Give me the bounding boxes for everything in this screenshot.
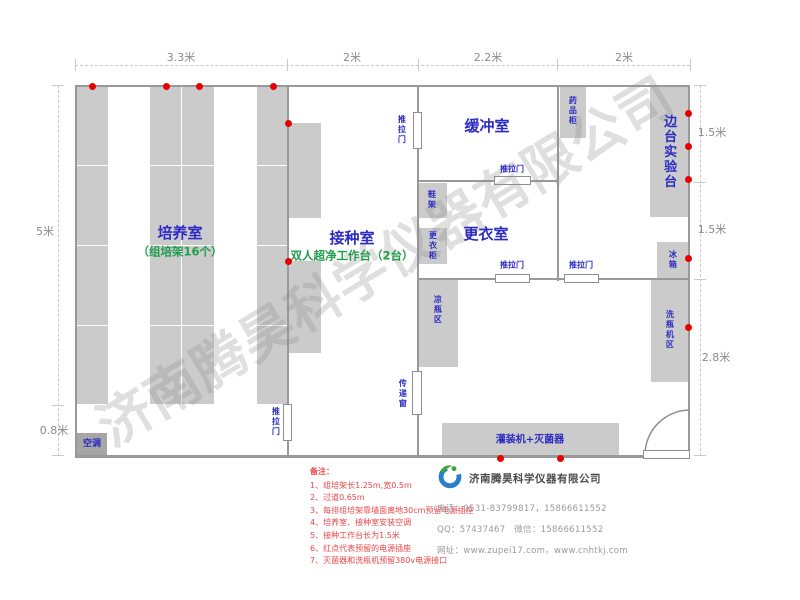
fridge-label: 冰箱 [668, 250, 677, 270]
sliding-door-label-5: 推拉门 [569, 262, 593, 271]
power-socket-dot [89, 83, 96, 90]
medicine-cabinet-label: 药品柜 [568, 96, 577, 126]
changing-room-label: 更衣室 [463, 226, 508, 243]
rack-shelf-divider [77, 325, 108, 326]
dim-line-right [700, 85, 701, 456]
rack-shelf-divider [77, 165, 108, 166]
wall-inoculation-buffer-upper [417, 85, 419, 113]
clean-bench-1 [289, 123, 321, 218]
shoe-rack-label: 鞋架 [427, 190, 436, 210]
dim-top-2: 2米 [343, 52, 361, 64]
bottle-washer-label: 洗瓶机区 [665, 310, 674, 350]
power-socket-dot [196, 83, 203, 90]
company-website: 网址：www.zupei17.com，www.cnhtkj.com [437, 544, 657, 556]
wall-buffer-sidebench [557, 85, 559, 281]
company-qq-wechat: QQ：57437467 微信：15866611552 [437, 523, 657, 535]
note-item: 7、灭菌器和洗瓶机预留380v电源接口 [310, 555, 473, 568]
filling-sterilizer-label: 灌装机+灭菌器 [496, 435, 564, 446]
company-logo-icon [437, 463, 463, 493]
dim-line-left [58, 85, 59, 456]
outer-wall-right [688, 85, 690, 458]
inoculation-room-sublabel: 双人超净工作台（2台） [290, 250, 413, 263]
sliding-door-label-2: 推拉门 [271, 407, 280, 437]
culture-room-sublabel: （组培架16个） [137, 246, 222, 259]
dim-right-1: 1.5米 [698, 127, 727, 139]
rack-shelf-divider [257, 245, 287, 246]
outer-wall-left [75, 85, 77, 458]
power-socket-dot [685, 255, 692, 262]
power-socket-dot [685, 324, 692, 331]
power-socket-dot [285, 120, 292, 127]
bottle-cooling-label: 凉瓶区 [433, 295, 442, 325]
clean-bench-2 [289, 261, 321, 353]
rack-shelf-divider [257, 165, 287, 166]
sliding-door-label-1: 推拉门 [397, 115, 406, 145]
wall-culture-inoculation-upper [287, 85, 289, 405]
power-socket-dot [557, 455, 564, 462]
dim-top-3: 2.2米 [474, 52, 503, 64]
sliding-door-culture-room [283, 404, 292, 441]
power-socket-dot [685, 110, 692, 117]
sliding-door-sidebench-bottom [564, 274, 599, 283]
rack-shelf-divider [150, 165, 214, 166]
inoculation-room-label: 接种室 [329, 230, 374, 247]
rack-shelf-divider [150, 325, 214, 326]
wall-culture-inoculation-lower [287, 441, 289, 457]
wall-buffer-changing-left [418, 180, 495, 182]
rack-shelf-divider [257, 325, 287, 326]
company-block: 济南腾昊科学仪器有限公司 电话：0531-83799817，1586661155… [437, 463, 657, 556]
buffer-room-label: 缓冲室 [464, 118, 509, 135]
air-conditioner-label: 空调 [83, 440, 101, 450]
sliding-door-buffer-changing [494, 176, 531, 185]
dimension-tick [690, 59, 691, 71]
sliding-door-inoculation-room [413, 112, 422, 149]
wall-changing-bottomroom-1 [418, 278, 496, 280]
sliding-door-label-3: 推拉门 [500, 166, 524, 175]
transfer-window-label: 传递窗 [398, 379, 407, 409]
culture-room-label: 培养室 [157, 225, 202, 242]
power-socket-dot [163, 83, 170, 90]
rack-shelf-divider [77, 245, 108, 246]
company-phone: 电话：0531-83799817，15866611552 [437, 502, 657, 514]
dim-left-1: 5米 [36, 226, 54, 238]
dim-left-2: 0.8米 [40, 425, 69, 437]
wardrobe-label: 更衣柜 [428, 231, 437, 261]
company-name: 济南腾昊科学仪器有限公司 [469, 471, 601, 486]
power-socket-dot [685, 143, 692, 150]
dim-right-3: 2.8米 [702, 352, 731, 364]
wall-buffer-changing-right [530, 180, 558, 182]
outer-wall-bottom [75, 455, 690, 458]
floor-plan-canvas: 济南腾昊科学仪器有限公司 培养室（组培架16个）接种室双人超净工作台（2台）缓冲… [0, 0, 800, 600]
power-socket-dot [497, 455, 504, 462]
sliding-door-changing-bottom [495, 274, 530, 283]
dim-right-2: 1.5米 [698, 224, 727, 236]
wall-changing-bottomroom-2 [529, 278, 565, 280]
power-socket-dot [685, 176, 692, 183]
power-socket-dot [285, 258, 292, 265]
entrance-door-leaf [643, 450, 690, 459]
wall-changing-bottomroom-3 [598, 278, 690, 280]
dim-line-top [75, 65, 690, 66]
sliding-door-label-4: 推拉门 [500, 262, 524, 271]
dim-top-4: 2米 [615, 52, 633, 64]
side-lab-bench-label: 边台实验台 [661, 115, 675, 190]
power-socket-dot [270, 83, 277, 90]
transfer-window [412, 371, 422, 415]
dim-top-1: 3.3米 [167, 52, 196, 64]
